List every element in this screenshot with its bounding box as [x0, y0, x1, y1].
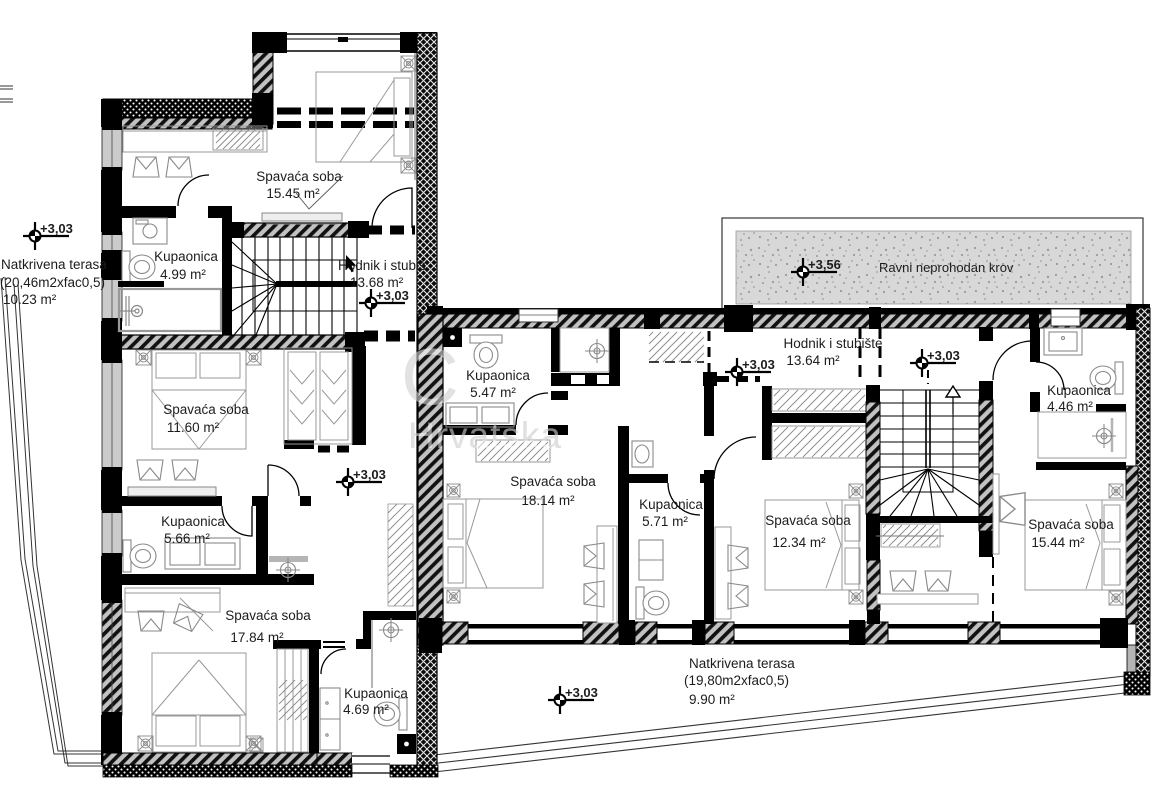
svg-text:C: C — [401, 332, 459, 421]
svg-text:9.90 m²: 9.90 m² — [689, 692, 735, 707]
svg-text:5.71 m²: 5.71 m² — [642, 514, 688, 529]
svg-text:(20,46m2xfac0,5): (20,46m2xfac0,5) — [0, 275, 105, 290]
svg-text:15.44 m²: 15.44 m² — [1031, 535, 1085, 550]
svg-text:Spavaća soba: Spavaća soba — [256, 169, 342, 184]
svg-text:(19,80m2xfac0,5): (19,80m2xfac0,5) — [684, 673, 789, 688]
svg-text:Kupaonica: Kupaonica — [154, 249, 218, 264]
svg-text:5.66 m²: 5.66 m² — [164, 531, 210, 546]
svg-text:+3,56: +3,56 — [808, 257, 841, 272]
svg-text:Kupaonica: Kupaonica — [161, 514, 225, 529]
svg-text:Spavaća soba: Spavaća soba — [163, 402, 249, 417]
svg-text:17.84 m²: 17.84 m² — [230, 630, 284, 645]
svg-text:Hrvatska: Hrvatska — [408, 415, 562, 456]
svg-text:Hodnik i stubište: Hodnik i stubište — [783, 336, 882, 351]
svg-text:10.23 m²: 10.23 m² — [3, 292, 57, 307]
svg-text:Natkrivena terasa: Natkrivena terasa — [1, 257, 107, 272]
svg-text:Natkrivena terasa: Natkrivena terasa — [689, 656, 795, 671]
svg-text:Spavaća soba: Spavaća soba — [1028, 517, 1114, 532]
svg-text:4.99 m²: 4.99 m² — [160, 267, 206, 282]
svg-text:+3,03: +3,03 — [742, 357, 775, 372]
svg-text:12.34 m²: 12.34 m² — [772, 535, 826, 550]
svg-text:4.46 m²: 4.46 m² — [1047, 399, 1093, 414]
svg-text:Kupaonica: Kupaonica — [639, 497, 703, 512]
svg-text:18.14 m²: 18.14 m² — [521, 493, 575, 508]
svg-text:Kupaonica: Kupaonica — [344, 686, 408, 701]
svg-text:Kupaonica: Kupaonica — [466, 368, 530, 383]
svg-text:15.45 m²: 15.45 m² — [266, 186, 320, 201]
svg-text:4.69 m²: 4.69 m² — [343, 702, 389, 717]
svg-text:5.47 m²: 5.47 m² — [470, 385, 516, 400]
svg-text:+3,03: +3,03 — [565, 685, 598, 700]
svg-text:Spavaća soba: Spavaća soba — [510, 474, 596, 489]
svg-text:Ravni neprohodan krov: Ravni neprohodan krov — [879, 260, 1014, 275]
svg-text:Spavaća soba: Spavaća soba — [765, 513, 851, 528]
svg-text:13.64 m²: 13.64 m² — [786, 353, 840, 368]
svg-text:+3,03: +3,03 — [927, 348, 960, 363]
svg-text:11.60 m²: 11.60 m² — [167, 420, 220, 435]
svg-text:Kupaonica: Kupaonica — [1047, 383, 1111, 398]
svg-text:+3,03: +3,03 — [40, 221, 73, 236]
svg-text:+3,03: +3,03 — [353, 467, 386, 482]
svg-text:+3,03: +3,03 — [376, 288, 409, 303]
svg-text:Spavaća soba: Spavaća soba — [225, 608, 311, 623]
